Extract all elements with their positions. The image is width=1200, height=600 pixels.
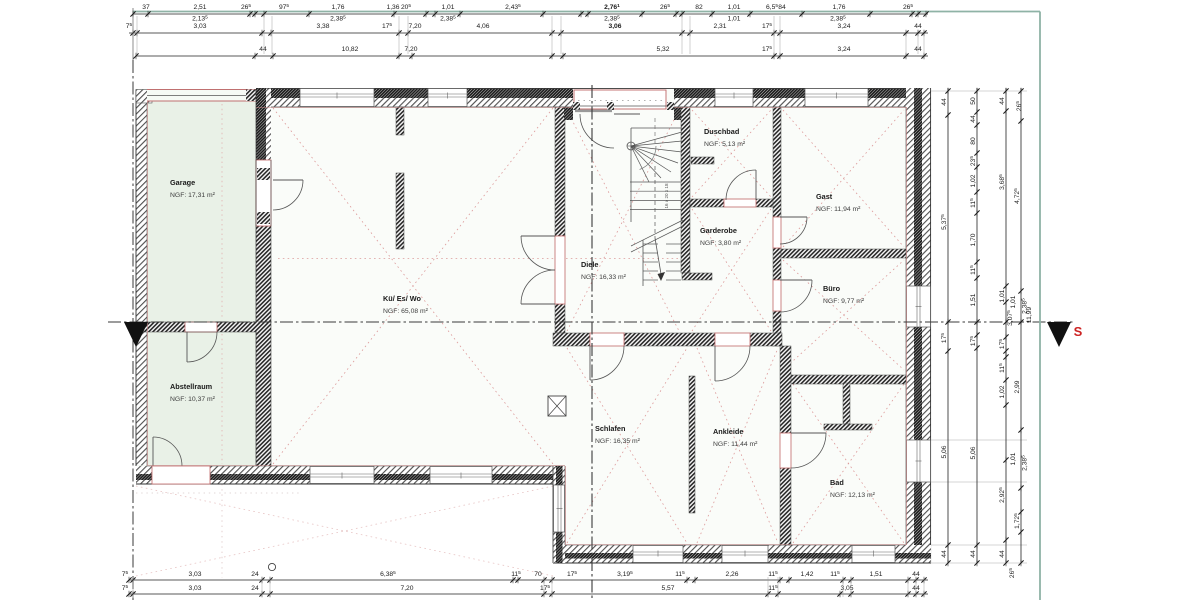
svg-text:1,01: 1,01 <box>1010 295 1017 308</box>
svg-text:44: 44 <box>914 23 922 30</box>
svg-text:44: 44 <box>912 571 920 578</box>
svg-text:2,31: 2,31 <box>713 23 726 30</box>
svg-text:1,01: 1,01 <box>1010 452 1017 465</box>
svg-text:NGF: 9,77 m²: NGF: 9,77 m² <box>823 298 865 305</box>
svg-text:3,06: 3,06 <box>608 23 621 30</box>
svg-text:3,03: 3,03 <box>188 585 201 592</box>
svg-text:1,01: 1,01 <box>441 4 454 11</box>
svg-text:37: 37 <box>142 4 150 11</box>
svg-text:2,99: 2,99 <box>1014 380 1021 393</box>
svg-text:Garage: Garage <box>170 178 195 187</box>
svg-text:10,82: 10,82 <box>342 46 359 53</box>
svg-text:82: 82 <box>695 4 703 11</box>
svg-text:NGF: 16,35 m²: NGF: 16,35 m² <box>595 438 641 445</box>
svg-text:Büro: Büro <box>823 284 841 293</box>
svg-text:5,06: 5,06 <box>970 446 977 459</box>
svg-text:24: 24 <box>251 585 259 592</box>
svg-text:Gast: Gast <box>816 192 833 201</box>
svg-text:1,51: 1,51 <box>869 571 882 578</box>
svg-text:44: 44 <box>999 550 1006 558</box>
svg-text:S: S <box>1074 324 1083 339</box>
svg-text:7,20: 7,20 <box>400 585 413 592</box>
svg-text:84: 84 <box>778 4 786 11</box>
svg-text:Duschbad: Duschbad <box>704 127 739 136</box>
svg-text:1,02: 1,02 <box>970 174 977 187</box>
svg-text:Schlafen: Schlafen <box>595 424 625 433</box>
svg-text:1,01: 1,01 <box>999 289 1006 302</box>
svg-text:Abstellraum: Abstellraum <box>170 382 213 391</box>
svg-text:5,32: 5,32 <box>656 46 669 53</box>
svg-text:NGF: 16,33 m²: NGF: 16,33 m² <box>581 274 627 281</box>
svg-text:Garderobe: Garderobe <box>700 226 737 235</box>
svg-text:80: 80 <box>970 137 977 145</box>
svg-text:3,05: 3,05 <box>840 585 853 592</box>
svg-text:Ankleide: Ankleide <box>713 427 743 436</box>
svg-text:NGF: 5,13 m²: NGF: 5,13 m² <box>704 141 746 148</box>
svg-text:1,76: 1,76 <box>832 4 845 11</box>
svg-text:Diele: Diele <box>581 260 598 269</box>
svg-text:3,24: 3,24 <box>837 23 850 30</box>
svg-text:1,36: 1,36 <box>386 4 399 11</box>
svg-text:24: 24 <box>251 571 259 578</box>
svg-text:1,01: 1,01 <box>727 16 740 23</box>
svg-text:16 x 20 x 18: 16 x 20 x 18 <box>664 183 669 208</box>
svg-text:NGF: 65,08 m²: NGF: 65,08 m² <box>383 308 429 315</box>
svg-text:44: 44 <box>970 550 977 558</box>
svg-text:Bad: Bad <box>830 478 844 487</box>
svg-text:7,20: 7,20 <box>408 23 421 30</box>
svg-text:4,06: 4,06 <box>476 23 489 30</box>
svg-text:5,06: 5,06 <box>941 445 948 458</box>
svg-text:NGF: 11,94 m²: NGF: 11,94 m² <box>816 206 861 213</box>
svg-text:44: 44 <box>259 46 267 53</box>
svg-text:44: 44 <box>941 98 948 106</box>
svg-text:NGF: 11,44 m²: NGF: 11,44 m² <box>713 441 758 448</box>
svg-text:1,76: 1,76 <box>331 4 344 11</box>
svg-text:70: 70 <box>534 571 542 578</box>
svg-text:NGF: 17,31 m²: NGF: 17,31 m² <box>170 192 216 199</box>
svg-text:3,38: 3,38 <box>316 23 329 30</box>
svg-text:3,24: 3,24 <box>837 46 850 53</box>
svg-text:3,03: 3,03 <box>193 23 206 30</box>
svg-text:3,03: 3,03 <box>188 571 201 578</box>
svg-text:7,20: 7,20 <box>404 46 417 53</box>
svg-text:5,57: 5,57 <box>661 585 674 592</box>
svg-text:1,02: 1,02 <box>999 385 1006 398</box>
svg-text:50: 50 <box>970 97 977 105</box>
svg-text:2,26: 2,26 <box>725 571 738 578</box>
svg-text:NGF: 10,37 m²: NGF: 10,37 m² <box>170 396 216 403</box>
svg-text:44: 44 <box>941 550 948 558</box>
svg-text:2,51: 2,51 <box>193 4 206 11</box>
svg-text:1,01: 1,01 <box>727 4 740 11</box>
svg-text:44: 44 <box>970 115 977 123</box>
svg-text:NGF: 12,13 m²: NGF: 12,13 m² <box>830 492 876 499</box>
svg-text:1,51: 1,51 <box>970 293 977 306</box>
svg-text:1,70: 1,70 <box>970 233 977 246</box>
svg-text:11,99: 11,99 <box>1026 307 1033 324</box>
svg-text:44: 44 <box>999 97 1006 105</box>
svg-text:NGF: 3,80 m²: NGF: 3,80 m² <box>700 240 742 247</box>
svg-text:1,42: 1,42 <box>800 571 813 578</box>
svg-text:Kü/ Es/ Wo: Kü/ Es/ Wo <box>383 294 422 303</box>
